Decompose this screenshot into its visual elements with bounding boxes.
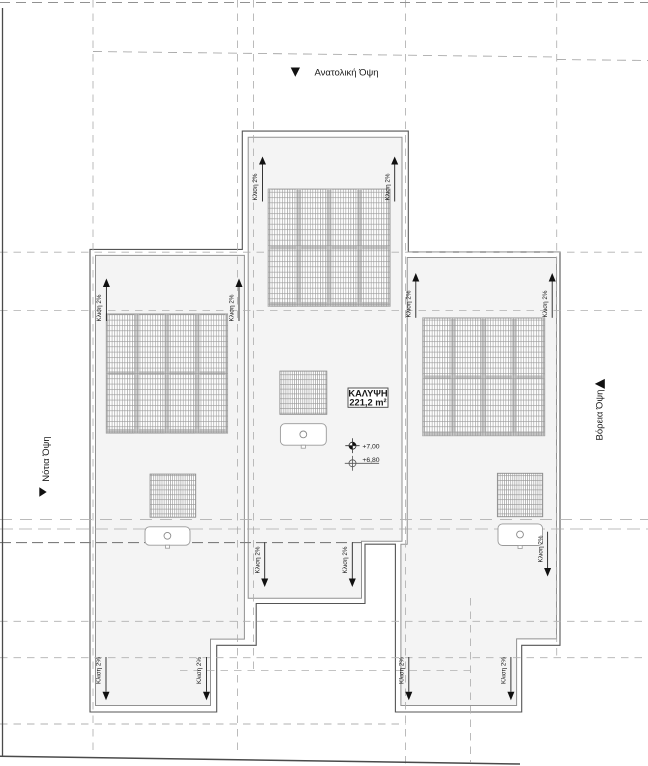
svg-text:Κλιση 2%: Κλιση 2%: [399, 657, 406, 684]
svg-text:Κλιση 2%: Κλιση 2%: [252, 173, 259, 200]
svg-text:Κλιση 2%: Κλιση 2%: [384, 173, 391, 200]
svg-text:Κλιση 2%: Κλιση 2%: [406, 290, 413, 317]
svg-text:+7,00: +7,00: [362, 443, 379, 450]
svg-text:Κλιση 2%: Κλιση 2%: [96, 657, 103, 684]
svg-text:+6,80: +6,80: [362, 457, 379, 464]
svg-text:Κλιση 2%: Κλιση 2%: [542, 290, 549, 317]
svg-text:Κλιση 2%: Κλιση 2%: [501, 657, 508, 684]
svg-text:Κλιση 2%: Κλιση 2%: [254, 546, 261, 573]
svg-text:Ανατολική Όψη: Ανατολική Όψη: [315, 67, 379, 78]
svg-text:Βόρεια Όψη: Βόρεια Όψη: [595, 390, 606, 441]
svg-text:Κλιση 2%: Κλιση 2%: [229, 294, 236, 321]
svg-text:Κλιση 2%: Κλιση 2%: [342, 546, 349, 573]
svg-text:Κλιση 2%: Κλιση 2%: [196, 657, 203, 684]
svg-text:Νότια Όψη: Νότια Όψη: [41, 436, 52, 481]
svg-text:Κλιση 2%: Κλιση 2%: [537, 535, 544, 562]
svg-text:Κλιση 2%: Κλιση 2%: [96, 294, 103, 321]
svg-text:221,2 m²: 221,2 m²: [349, 397, 386, 407]
